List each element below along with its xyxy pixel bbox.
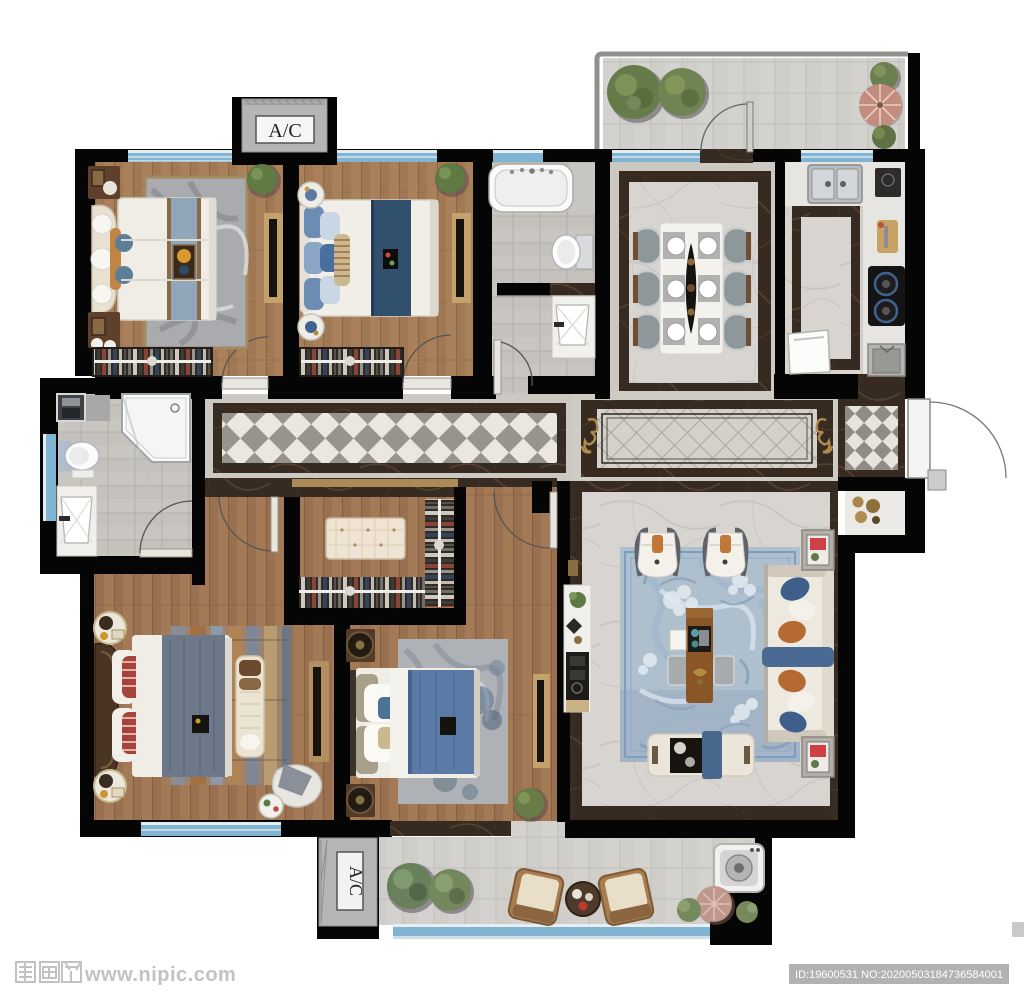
- svg-text:A/C: A/C: [268, 120, 301, 142]
- svg-text:A/C: A/C: [346, 866, 366, 896]
- svg-text:www.nipic.com: www.nipic.com: [84, 964, 236, 986]
- svg-text:ID:19600531 NO:202005031847365: ID:19600531 NO:20200503184736584001: [795, 969, 1003, 981]
